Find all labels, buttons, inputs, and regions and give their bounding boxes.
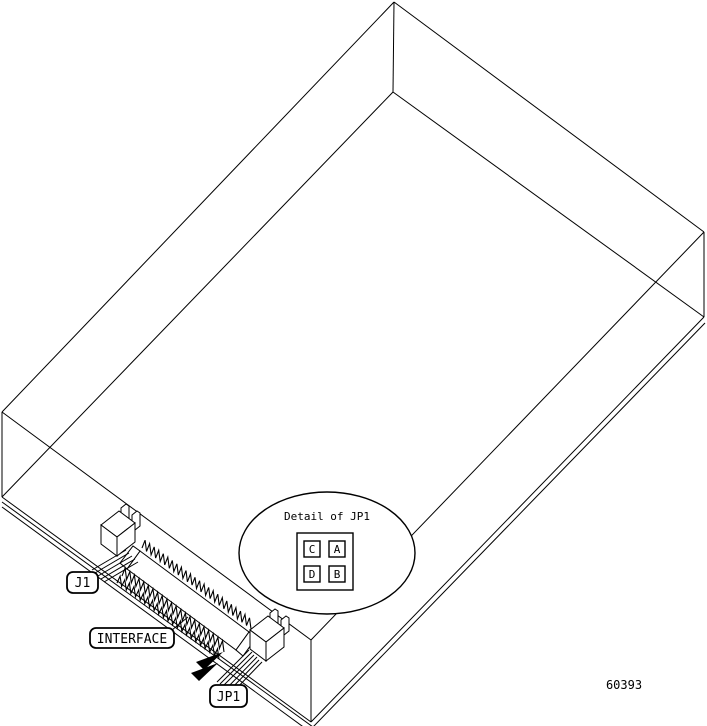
j1-label-text: J1 bbox=[75, 576, 91, 591]
figure-number: 60393 bbox=[606, 678, 642, 692]
jp1-detail-title: Detail of JP1 bbox=[284, 510, 370, 523]
jp1-label-text: JP1 bbox=[217, 690, 240, 705]
jumper-a-label: A bbox=[334, 543, 341, 556]
interface-label-text: INTERFACE bbox=[97, 632, 167, 647]
jp1-label: JP1 bbox=[210, 685, 247, 707]
enclosure-wireframe bbox=[2, 2, 704, 722]
j1-label: J1 bbox=[67, 572, 98, 593]
interface-label: INTERFACE bbox=[90, 628, 174, 648]
hard-drive-jumper-diagram: Detail of JP1 C A D B J1 INTERFACE JP1 6… bbox=[0, 0, 707, 726]
callout-labels: J1 INTERFACE JP1 bbox=[67, 572, 247, 707]
jumper-d-label: D bbox=[309, 568, 316, 581]
jp1-detail-callout: Detail of JP1 C A D B bbox=[239, 492, 415, 614]
jumper-c-label: C bbox=[309, 543, 316, 556]
jumper-b-label: B bbox=[334, 568, 341, 581]
